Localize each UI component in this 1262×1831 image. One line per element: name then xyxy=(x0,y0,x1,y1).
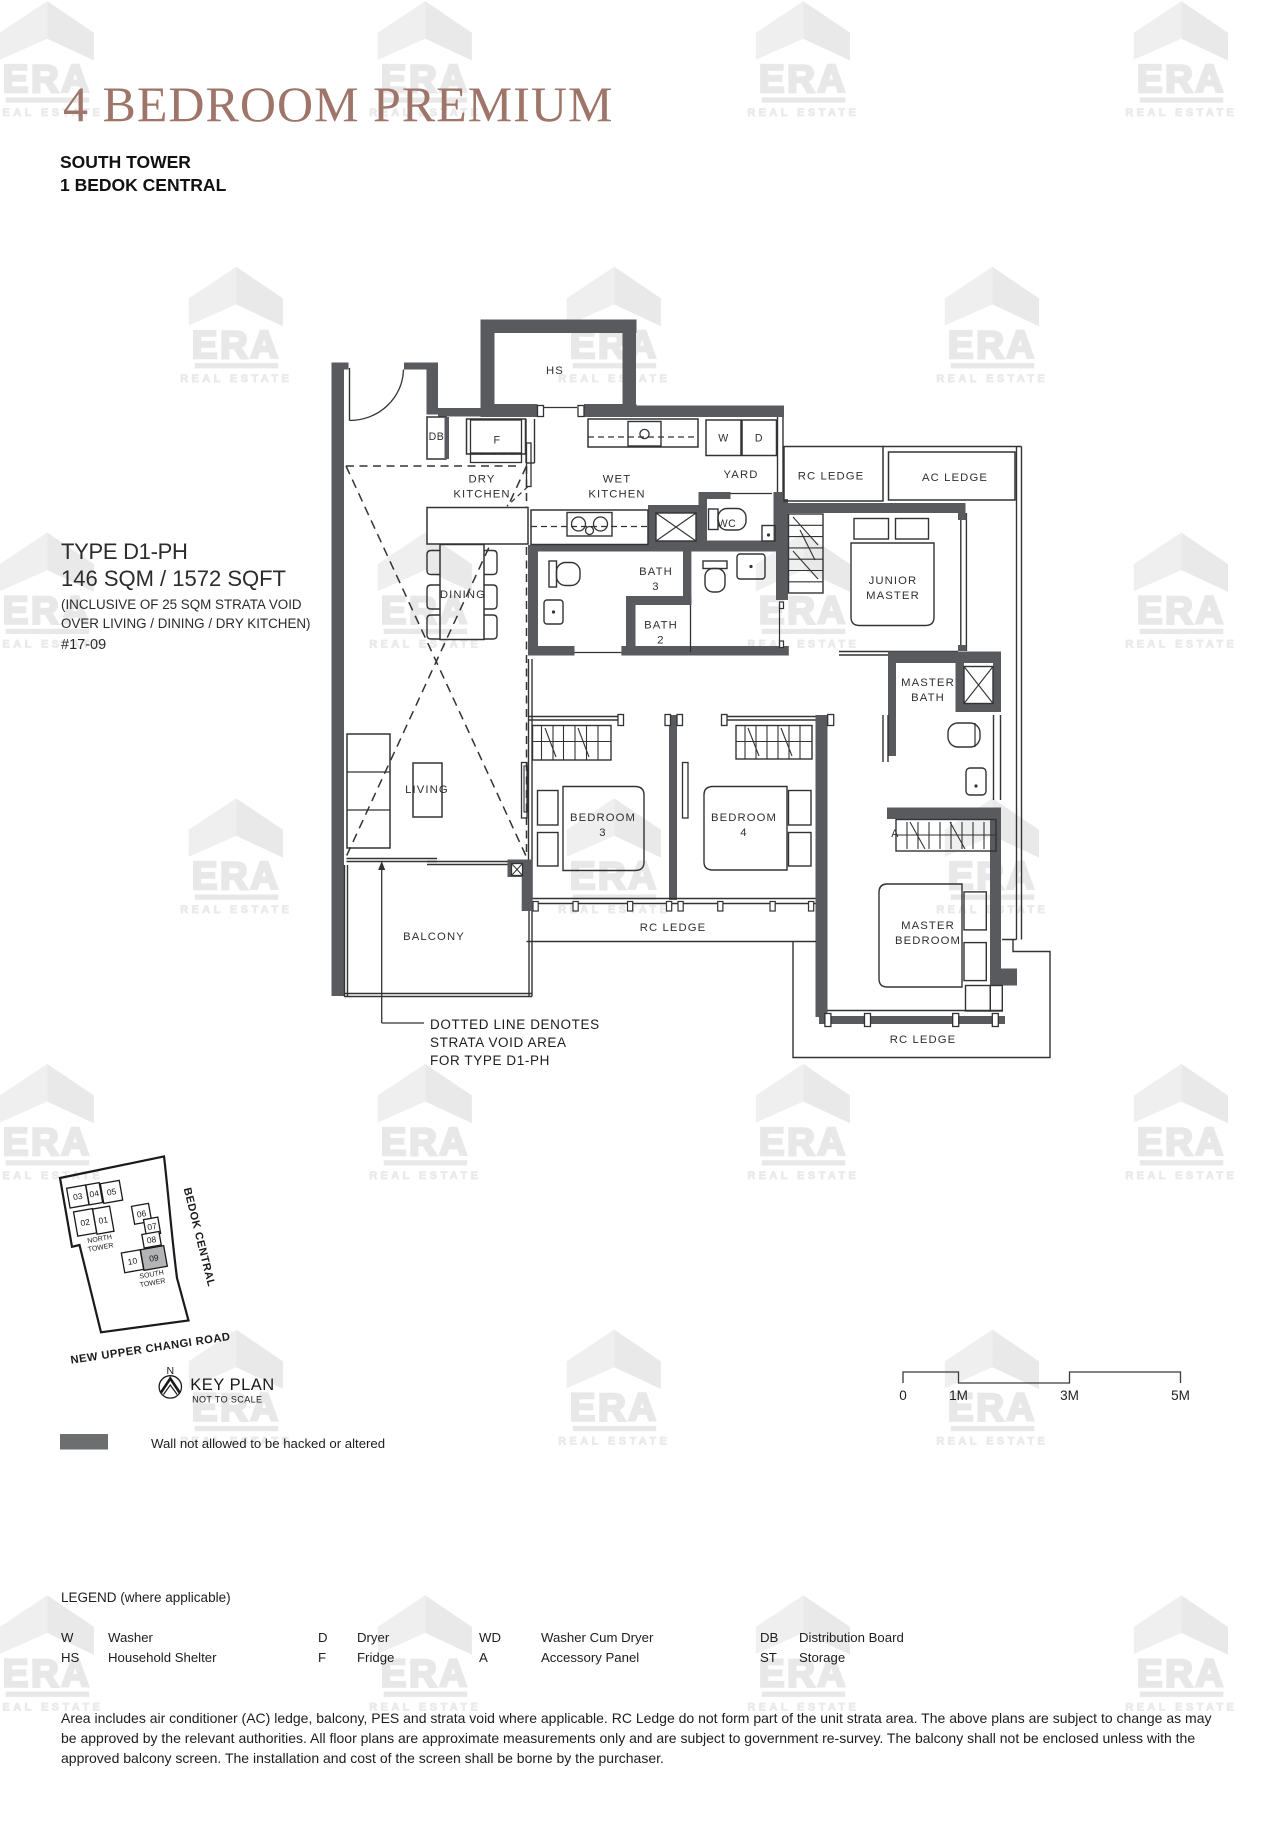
svg-text:03: 03 xyxy=(72,1191,83,1203)
svg-text:BATH: BATH xyxy=(911,692,945,704)
svg-text:3M: 3M xyxy=(1060,1388,1079,1403)
svg-text:3: 3 xyxy=(599,827,606,839)
svg-text:D: D xyxy=(755,433,763,445)
svg-text:MASTER: MASTER xyxy=(901,677,955,689)
svg-text:BATH: BATH xyxy=(644,620,678,632)
svg-text:KITCHEN: KITCHEN xyxy=(453,489,510,501)
svg-text:HS: HS xyxy=(546,365,564,377)
svg-text:NOT TO SCALE: NOT TO SCALE xyxy=(192,1395,262,1405)
svg-text:STRATA VOID AREA: STRATA VOID AREA xyxy=(430,1035,567,1050)
svg-text:MASTER: MASTER xyxy=(901,920,955,932)
svg-text:08: 08 xyxy=(146,1234,157,1246)
svg-text:Wall not allowed to be hacked: Wall not allowed to be hacked or altered xyxy=(151,1436,385,1451)
svg-text:NEW UPPER CHANGI ROAD: NEW UPPER CHANGI ROAD xyxy=(70,1331,232,1367)
svg-text:02: 02 xyxy=(80,1217,91,1229)
svg-text:N: N xyxy=(167,1365,175,1377)
svg-text:0: 0 xyxy=(899,1388,907,1403)
svg-text:DRY: DRY xyxy=(469,474,496,486)
svg-text:KEY PLAN: KEY PLAN xyxy=(190,1376,274,1394)
svg-text:BEDROOM: BEDROOM xyxy=(895,935,961,947)
svg-text:RC LEDGE: RC LEDGE xyxy=(798,471,865,483)
svg-text:KITCHEN: KITCHEN xyxy=(588,489,645,501)
svg-text:10: 10 xyxy=(127,1255,138,1267)
svg-text:06: 06 xyxy=(136,1208,147,1220)
svg-text:AC LEDGE: AC LEDGE xyxy=(922,472,988,484)
svg-text:BEDROOM: BEDROOM xyxy=(711,812,777,824)
svg-text:04: 04 xyxy=(89,1188,100,1200)
svg-text:DINING: DINING xyxy=(440,589,486,601)
svg-text:YARD: YARD xyxy=(724,469,759,481)
svg-text:F: F xyxy=(494,435,501,447)
svg-text:3: 3 xyxy=(652,581,659,593)
svg-text:BEDROOM: BEDROOM xyxy=(570,812,636,824)
svg-text:4: 4 xyxy=(740,827,747,839)
svg-text:01: 01 xyxy=(98,1214,109,1226)
svg-text:RC LEDGE: RC LEDGE xyxy=(640,922,707,934)
svg-text:FOR TYPE D1-PH: FOR TYPE D1-PH xyxy=(430,1053,550,1068)
svg-text:09: 09 xyxy=(148,1252,159,1264)
svg-text:2: 2 xyxy=(657,635,664,647)
svg-text:05: 05 xyxy=(106,1186,117,1198)
svg-text:07: 07 xyxy=(147,1221,158,1233)
svg-text:RC LEDGE: RC LEDGE xyxy=(890,1034,957,1046)
svg-text:MASTER: MASTER xyxy=(866,590,920,602)
svg-text:WC: WC xyxy=(718,518,737,530)
svg-text:W: W xyxy=(718,433,729,445)
svg-text:DB: DB xyxy=(429,431,445,443)
svg-text:BALCONY: BALCONY xyxy=(403,931,465,943)
svg-text:WET: WET xyxy=(603,474,631,486)
svg-text:1M: 1M xyxy=(949,1388,968,1403)
svg-text:BATH: BATH xyxy=(639,566,673,578)
svg-text:DOTTED LINE DENOTES: DOTTED LINE DENOTES xyxy=(430,1017,600,1032)
svg-text:BEDOK CENTRAL: BEDOK CENTRAL xyxy=(181,1186,217,1288)
svg-text:JUNIOR: JUNIOR xyxy=(869,575,918,587)
svg-text:LIVING: LIVING xyxy=(405,784,449,796)
svg-text:A: A xyxy=(891,828,899,840)
svg-text:5M: 5M xyxy=(1171,1388,1190,1403)
